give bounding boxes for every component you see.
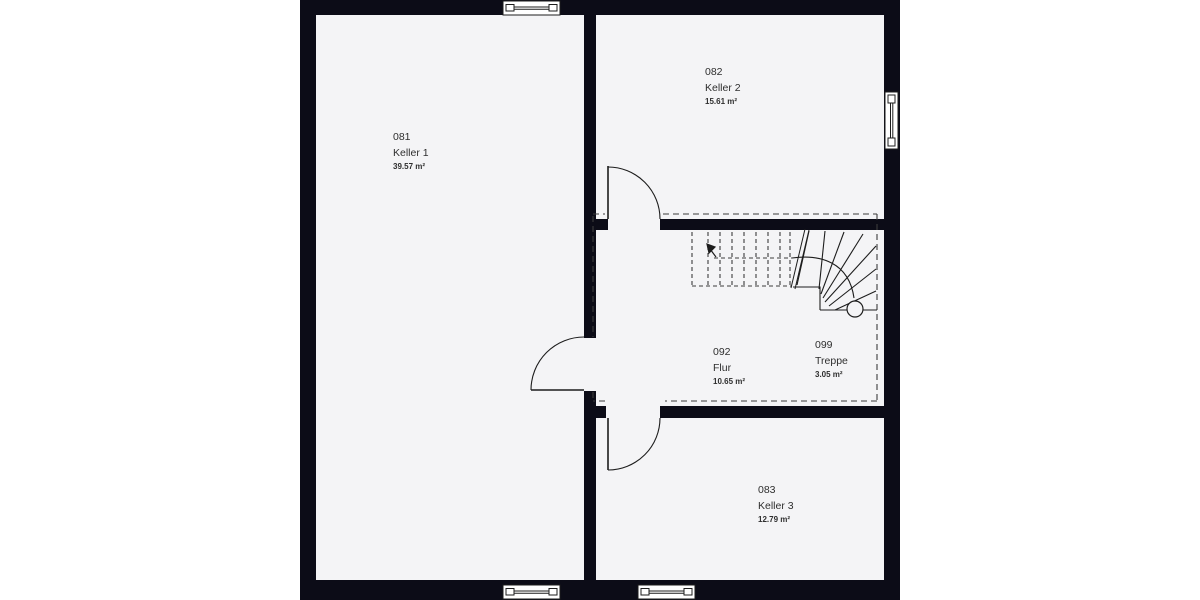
wall-flur-keller3 — [660, 406, 884, 418]
window-jamb-block — [506, 589, 514, 596]
room-area: 12.79 m² — [758, 515, 790, 524]
room-number: 083 — [758, 484, 776, 496]
window-bottom-left — [503, 585, 560, 599]
window-jamb-block — [888, 95, 895, 103]
interior-floor — [316, 15, 884, 580]
room-name: Flur — [713, 362, 732, 374]
room-name: Treppe — [815, 355, 848, 367]
window-jamb-block — [641, 589, 649, 596]
wall-vertical-lower — [584, 391, 596, 580]
room-name: Keller 3 — [758, 500, 794, 512]
window-jamb-block — [888, 138, 895, 146]
window-bottom-right — [638, 585, 695, 599]
wall-vertical-upper — [584, 15, 596, 338]
room-area: 3.05 m² — [815, 370, 843, 379]
wall-keller2-flur — [660, 219, 884, 230]
room-number: 099 — [815, 339, 833, 351]
window-jamb-block — [506, 5, 514, 12]
stair-newel-post — [847, 301, 863, 317]
window-jamb-block — [549, 589, 557, 596]
room-number: 081 — [393, 131, 411, 143]
floor-plan: 081 Keller 1 39.57 m² 082 Keller 2 15.61… — [300, 0, 900, 600]
room-area: 10.65 m² — [713, 377, 745, 386]
window-right — [885, 92, 898, 149]
room-area: 15.61 m² — [705, 97, 737, 106]
window-jamb-block — [684, 589, 692, 596]
room-number: 092 — [713, 346, 731, 358]
wall-bottom-stub — [596, 406, 606, 418]
wall-top-stub — [596, 219, 608, 230]
window-jamb-block — [549, 5, 557, 12]
floor-plan-drawing: 081 Keller 1 39.57 m² 082 Keller 2 15.61… — [300, 0, 900, 600]
room-number: 082 — [705, 66, 723, 78]
room-area: 39.57 m² — [393, 162, 425, 171]
window-top — [503, 1, 560, 15]
floor-plan-page: 081 Keller 1 39.57 m² 082 Keller 2 15.61… — [0, 0, 1200, 600]
room-name: Keller 1 — [393, 147, 429, 159]
room-name: Keller 2 — [705, 82, 741, 94]
